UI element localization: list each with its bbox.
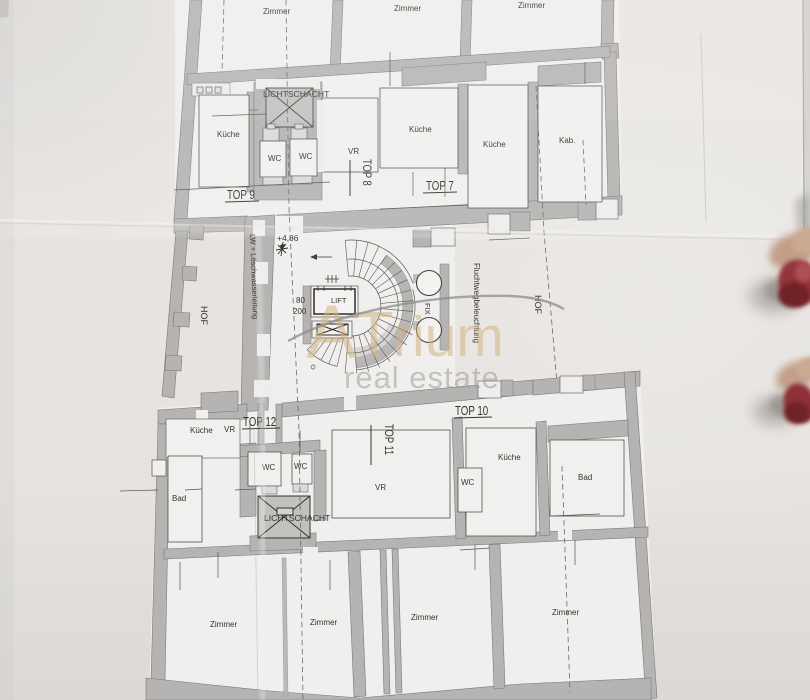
svg-text:Bad: Bad — [172, 494, 186, 503]
svg-text:80: 80 — [296, 296, 305, 305]
svg-text:200: 200 — [293, 307, 307, 316]
svg-text:WC: WC — [294, 462, 308, 471]
svg-text:Bad: Bad — [578, 473, 592, 482]
svg-text:VR: VR — [375, 483, 386, 492]
svg-text:LICHTSCHACHT: LICHTSCHACHT — [264, 513, 331, 523]
svg-text:WC: WC — [461, 478, 475, 487]
svg-text:TOP 12: TOP 12 — [243, 416, 276, 429]
svg-text:real estate: real estate — [344, 360, 500, 395]
svg-text:Zimmer: Zimmer — [310, 618, 337, 627]
svg-text:Küche: Küche — [498, 453, 521, 462]
svg-text:Zimmer: Zimmer — [552, 608, 579, 617]
svg-text:Zimmer: Zimmer — [210, 620, 237, 629]
svg-text:TOP 11: TOP 11 — [382, 424, 395, 455]
svg-text:VR: VR — [224, 425, 235, 434]
svg-text:HOF: HOF — [199, 306, 209, 326]
svg-text:TOP 10: TOP 10 — [455, 405, 488, 418]
svg-text:Küche: Küche — [190, 426, 213, 435]
svg-text:Zimmer: Zimmer — [411, 613, 438, 622]
